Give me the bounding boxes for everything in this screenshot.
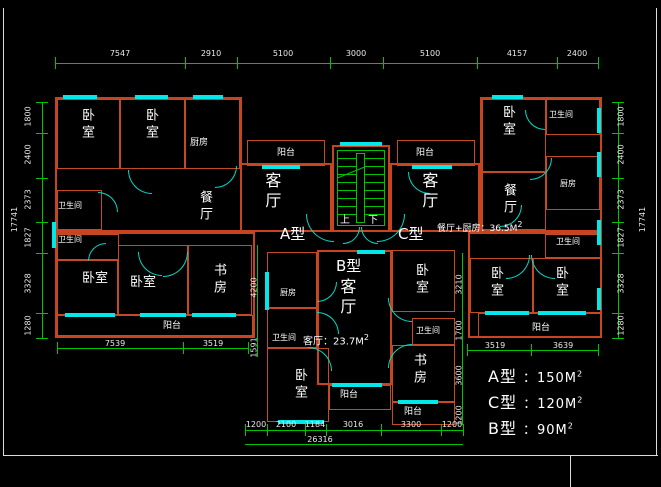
dim-label: 1200 bbox=[246, 420, 266, 429]
room-label-bath: 卫生间 bbox=[272, 333, 296, 342]
dim-label: 1280 bbox=[24, 315, 33, 335]
room-label-bath: 卫生间 bbox=[416, 326, 440, 335]
room-label-bedroom: 卧室 bbox=[291, 368, 306, 402]
dim-label: 2400 bbox=[24, 144, 33, 164]
window bbox=[340, 142, 382, 146]
unit-a-label: A型 bbox=[280, 226, 305, 243]
dim-tick bbox=[612, 178, 624, 179]
dim-line-right bbox=[618, 102, 619, 338]
dim-tick bbox=[612, 253, 624, 254]
room-label-balcony: 阳台 bbox=[404, 407, 422, 417]
sheet-border-right bbox=[656, 8, 657, 456]
room-label-living: 客厅 bbox=[419, 172, 437, 212]
dim-label: 3519 bbox=[203, 339, 223, 348]
dim-tick bbox=[612, 338, 624, 339]
dim-label: 1184 bbox=[305, 420, 325, 429]
window bbox=[597, 288, 601, 310]
dim-label: 5100 bbox=[273, 49, 293, 58]
dim-label: 5100 bbox=[420, 49, 440, 58]
window bbox=[262, 165, 300, 169]
room-outline-kitchen bbox=[267, 252, 317, 308]
room-label-dining: 餐厅 bbox=[500, 183, 515, 217]
room-label-balcony: 阳台 bbox=[532, 323, 550, 333]
window bbox=[192, 313, 236, 317]
dim-label: 3000 bbox=[346, 49, 366, 58]
dim-line-bottom bbox=[245, 430, 463, 431]
window bbox=[398, 400, 438, 404]
dim-label: 3210 bbox=[455, 274, 464, 294]
dim-tick bbox=[381, 424, 382, 436]
legend-row-b: B型：90M2 bbox=[488, 415, 574, 439]
window bbox=[492, 95, 523, 99]
stair-rail bbox=[356, 153, 365, 223]
dim-label-total: 26316 bbox=[307, 435, 332, 444]
window bbox=[485, 311, 529, 315]
room-label-balcony: 阳台 bbox=[416, 148, 434, 158]
dim-label: 2910 bbox=[201, 49, 221, 58]
dim-label: 1200 bbox=[455, 405, 464, 425]
room-label-bath: 卫生间 bbox=[556, 237, 580, 246]
dim-label: 1700 bbox=[455, 320, 464, 340]
balcony-outline bbox=[397, 140, 475, 166]
dim-tick bbox=[557, 57, 558, 69]
room-label-balcony: 阳台 bbox=[340, 390, 358, 400]
legend-row-c: C型：120M2 bbox=[488, 389, 583, 413]
room-label-balcony: 阳台 bbox=[277, 148, 295, 158]
dim-label-total: 17741 bbox=[638, 207, 647, 232]
window bbox=[135, 95, 168, 99]
dim-label: 1591 bbox=[250, 337, 259, 357]
room-label-bedroom: 卧室 bbox=[552, 266, 567, 300]
dim-tick bbox=[463, 424, 464, 436]
room-label-kitchen: 厨房 bbox=[560, 179, 576, 188]
room-outline-bedroom bbox=[57, 260, 118, 315]
dim-label: 7547 bbox=[110, 49, 130, 58]
area-annotation-b: 客厅：23.7M2 bbox=[303, 333, 369, 348]
dim-label: 1800 bbox=[617, 106, 626, 126]
room-label-bedroom: 卧室 bbox=[142, 108, 157, 142]
dim-tick bbox=[330, 57, 331, 69]
dim-label: 2373 bbox=[24, 189, 33, 209]
room-label-bedroom: 卧室 bbox=[82, 272, 108, 287]
room-label-balcony: 阳台 bbox=[163, 321, 181, 331]
dim-tick bbox=[612, 102, 624, 103]
dim-label: 3328 bbox=[24, 273, 33, 293]
window bbox=[597, 152, 601, 177]
window bbox=[597, 108, 601, 133]
dim-label: 2400 bbox=[617, 144, 626, 164]
balcony-outline bbox=[329, 385, 391, 410]
room-label-bedroom: 卧室 bbox=[487, 266, 502, 300]
room-label-living: 客厅 bbox=[262, 172, 280, 212]
dim-label: 3016 bbox=[343, 420, 363, 429]
dim-tick bbox=[36, 338, 48, 339]
window bbox=[538, 311, 586, 315]
door-arc bbox=[306, 214, 334, 242]
stairs-up-label: 上 bbox=[340, 215, 350, 227]
dim-label: 2373 bbox=[617, 189, 626, 209]
dim-tick bbox=[57, 342, 58, 354]
room-label-bath: 卫生间 bbox=[58, 235, 82, 244]
room-label-bath: 卫生间 bbox=[549, 110, 573, 119]
floor-plan-sheet: 7547 2910 5100 3000 5100 4157 2400 1800 … bbox=[0, 0, 661, 487]
unit-b-label: B型 bbox=[336, 258, 361, 275]
dim-tick bbox=[477, 57, 478, 69]
dim-label: 1280 bbox=[617, 315, 626, 335]
window bbox=[265, 272, 269, 310]
dim-label: 4157 bbox=[507, 49, 527, 58]
dim-label-total: 17741 bbox=[10, 207, 19, 232]
dim-label: 3600 bbox=[455, 365, 464, 385]
dim-tick bbox=[467, 344, 468, 356]
window bbox=[140, 313, 186, 317]
sheet-border-left bbox=[3, 8, 4, 456]
legend-row-a: A型：150M2 bbox=[488, 363, 583, 387]
dim-tick bbox=[36, 222, 48, 223]
room-label-kitchen: 厨房 bbox=[280, 288, 296, 297]
stairs-down-label: 下 bbox=[368, 215, 378, 227]
dim-tick bbox=[598, 57, 599, 69]
window bbox=[597, 220, 601, 245]
unit-c-label: C型 bbox=[398, 226, 423, 243]
dim-line-top bbox=[55, 63, 598, 64]
dim-line-bottom-total bbox=[245, 444, 463, 445]
window bbox=[332, 383, 382, 387]
dim-tick bbox=[612, 222, 624, 223]
dim-label: 4200 bbox=[250, 277, 259, 297]
dim-tick bbox=[383, 57, 384, 69]
room-label-study: 书房 bbox=[210, 263, 225, 297]
dim-label: 1827 bbox=[24, 227, 33, 247]
window bbox=[52, 222, 56, 248]
dim-label: 3300 bbox=[401, 420, 421, 429]
dim-tick bbox=[612, 313, 624, 314]
dim-label: 3519 bbox=[485, 341, 505, 350]
dim-tick bbox=[237, 57, 238, 69]
room-label-bedroom: 卧室 bbox=[412, 263, 427, 297]
balcony-outline bbox=[57, 315, 253, 336]
window bbox=[65, 313, 115, 317]
dim-label: 7539 bbox=[105, 339, 125, 348]
window bbox=[357, 250, 385, 254]
dim-label: 3639 bbox=[553, 341, 573, 350]
room-label-kitchen: 厨房 bbox=[190, 138, 208, 148]
room-label-living: 客厅 bbox=[337, 278, 355, 318]
door-arc bbox=[343, 227, 360, 244]
dim-label: 3328 bbox=[617, 273, 626, 293]
dim-tick bbox=[185, 57, 186, 69]
dim-tick bbox=[612, 133, 624, 134]
dim-label: 2100 bbox=[276, 420, 296, 429]
dim-line-mid-right bbox=[467, 350, 598, 351]
dim-line-left bbox=[42, 102, 43, 338]
dim-tick bbox=[267, 424, 268, 436]
dim-tick bbox=[36, 133, 48, 134]
door-arc bbox=[361, 227, 378, 244]
window bbox=[63, 95, 97, 99]
dim-label: 2400 bbox=[567, 49, 587, 58]
room-outline-kitchen bbox=[185, 99, 240, 169]
sheet-border-bottom bbox=[3, 455, 658, 456]
window bbox=[193, 95, 223, 99]
dim-tick bbox=[598, 344, 599, 356]
dim-tick bbox=[36, 253, 48, 254]
dim-tick bbox=[55, 57, 56, 69]
dim-label: 1827 bbox=[617, 227, 626, 247]
area-annotation-c: 餐厅+厨房：36.5M2 bbox=[437, 220, 522, 234]
room-label-bedroom: 卧室 bbox=[499, 105, 514, 139]
room-label-bath: 卫生间 bbox=[58, 201, 82, 210]
room-label-bedroom: 卧室 bbox=[130, 276, 156, 291]
room-label-bedroom: 卧室 bbox=[78, 108, 93, 142]
dim-tick bbox=[36, 178, 48, 179]
room-label-study: 书房 bbox=[410, 353, 425, 387]
dim-tick bbox=[531, 344, 532, 356]
dim-line-mid-left bbox=[57, 348, 248, 349]
room-label-dining: 餐厅 bbox=[196, 190, 211, 224]
window bbox=[412, 165, 452, 169]
dim-tick bbox=[183, 342, 184, 354]
dim-tick bbox=[36, 313, 48, 314]
dim-tick bbox=[36, 102, 48, 103]
dim-label: 1800 bbox=[24, 106, 33, 126]
title-block-divider bbox=[570, 455, 571, 487]
